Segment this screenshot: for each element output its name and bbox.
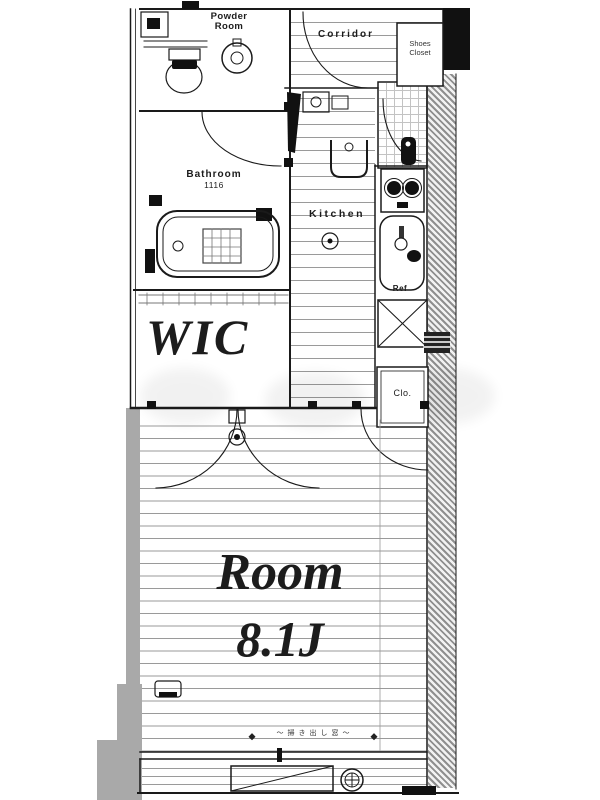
wic-door-arc-left — [156, 409, 237, 488]
bathroom-fixtures — [145, 112, 281, 277]
balcony-slope-icon — [231, 766, 333, 791]
door-hinge-block — [284, 102, 293, 111]
stove-icon — [381, 169, 424, 212]
corridor-label: Corridor — [299, 29, 393, 40]
gas-outlet-icon — [322, 233, 338, 249]
bath-drain-icon — [173, 241, 183, 251]
shoes-closet-label: Shoes Closet — [399, 39, 441, 57]
window-sash-overlap — [277, 748, 282, 762]
room-size-label: 8.1J — [155, 612, 405, 667]
bathroom-door-arc — [202, 112, 281, 166]
closet-label: Clo. — [380, 389, 425, 399]
wic-details — [139, 293, 288, 305]
door-hinge-block — [308, 401, 317, 409]
bath-fitting-block — [145, 249, 155, 273]
balcony-window — [138, 733, 458, 795]
entrance-door-arc — [303, 12, 368, 88]
sink-icon — [380, 216, 424, 290]
wc-room — [378, 82, 427, 168]
balcony-partition-block — [402, 786, 436, 795]
door-hinge-block — [147, 401, 156, 409]
bath-fitting-block — [149, 195, 162, 206]
entrance-door-leaf-icon — [287, 92, 301, 153]
drain-icon — [341, 769, 363, 791]
door-hinge-block — [284, 158, 293, 167]
shower-grid-icon — [203, 229, 241, 263]
balcony-fixtures — [231, 766, 363, 791]
refrigerator-space-icon — [378, 300, 427, 347]
room-misc — [155, 681, 181, 697]
meter-box-icon — [424, 332, 450, 353]
washer-pan-icon — [331, 141, 367, 177]
refrigerator-label: Ref — [384, 285, 416, 294]
top-right-wall-block — [443, 8, 470, 70]
water-heater-icon — [141, 12, 168, 37]
kitchen-fixtures — [322, 169, 450, 353]
plan-linework — [0, 0, 600, 800]
bathroom-label: Bathroom 1116 — [168, 169, 260, 190]
floorplan-canvas: Powder Room Corridor Shoes Closet Bathro… — [0, 0, 600, 800]
wc-unit-icon — [401, 137, 416, 165]
bathroom-size-label: 1116 — [168, 181, 260, 190]
wic-door-arc-right — [238, 409, 319, 488]
washbasin-icon — [222, 39, 252, 73]
utility-box-icon — [303, 92, 348, 112]
window-note-label: ～掃き出し窓～ — [253, 730, 377, 738]
toilet-icon — [166, 49, 202, 93]
room-label: Room — [155, 544, 405, 601]
door-hinge-block — [352, 401, 361, 409]
powder-room-label: Powder Room — [193, 12, 265, 33]
top-wall-post — [182, 1, 199, 9]
door-hinge-block — [420, 401, 429, 409]
ac-outlet-icon — [155, 681, 181, 697]
wic-label: WIC — [146, 310, 276, 365]
kitchen-label: Kitchen — [297, 209, 377, 221]
